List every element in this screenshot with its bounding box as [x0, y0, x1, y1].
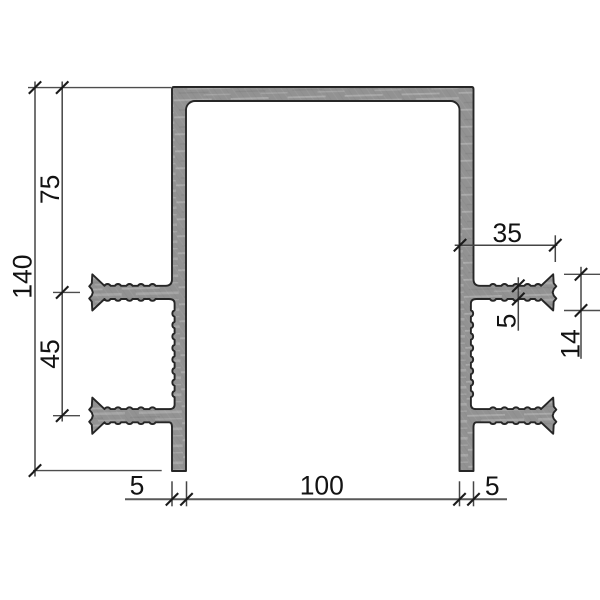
svg-text:75: 75: [35, 175, 65, 204]
svg-text:5: 5: [485, 471, 500, 501]
svg-text:140: 140: [7, 254, 37, 298]
svg-text:35: 35: [493, 218, 522, 248]
svg-text:5: 5: [491, 314, 521, 329]
svg-text:100: 100: [300, 470, 344, 500]
svg-text:14: 14: [556, 329, 586, 358]
svg-text:5: 5: [130, 470, 145, 500]
svg-text:45: 45: [35, 339, 65, 368]
